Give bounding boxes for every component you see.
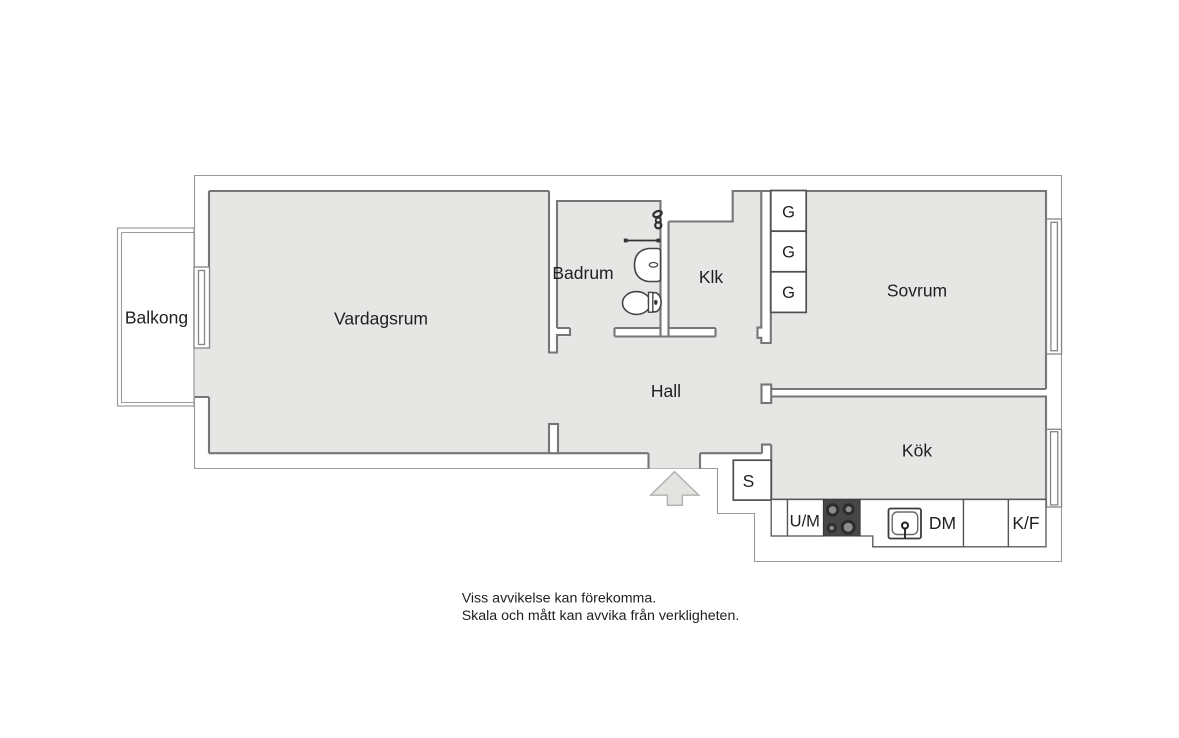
svg-text:K/F: K/F bbox=[1012, 513, 1039, 533]
svg-text:Vardagsrum: Vardagsrum bbox=[334, 309, 428, 329]
svg-text:G: G bbox=[782, 284, 795, 302]
svg-text:Skala och mått kan avvika från: Skala och mått kan avvika från verklighe… bbox=[462, 608, 740, 624]
svg-text:Viss avvikelse kan förekomma.: Viss avvikelse kan förekomma. bbox=[462, 591, 657, 607]
svg-text:Kök: Kök bbox=[902, 441, 932, 461]
svg-text:Sovrum: Sovrum bbox=[887, 281, 947, 301]
svg-text:Badrum: Badrum bbox=[552, 263, 613, 283]
svg-text:U/M: U/M bbox=[790, 513, 820, 531]
svg-text:Balkong: Balkong bbox=[125, 308, 188, 328]
svg-text:G: G bbox=[782, 244, 795, 262]
svg-text:Klk: Klk bbox=[699, 267, 724, 287]
svg-text:Hall: Hall bbox=[651, 381, 681, 401]
svg-text:DM: DM bbox=[929, 513, 956, 533]
svg-text:G: G bbox=[782, 204, 795, 222]
svg-text:S: S bbox=[743, 471, 755, 491]
